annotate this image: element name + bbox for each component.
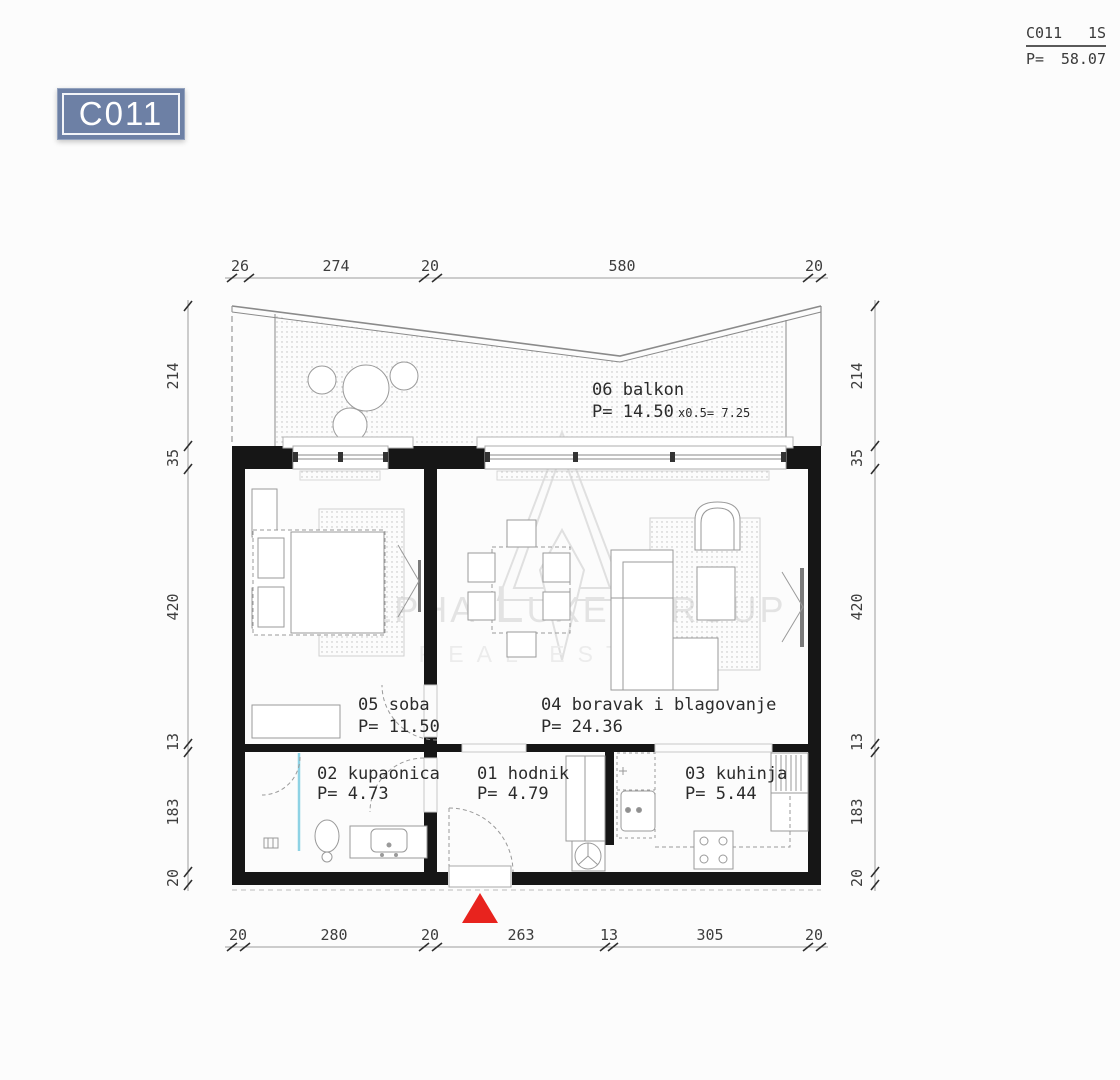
room-area-boravak: P= 24.36 [541,717,623,737]
faucet-dot [381,854,384,857]
sink-basin [371,829,407,852]
coffee-table [697,567,735,620]
room-label-kuhinja: 03 kuhinja [685,764,787,784]
dim-left-1: 35 [164,449,182,467]
room-area-kupaonica: P= 4.73 [317,784,389,804]
radiator [300,471,380,480]
dim-bottom-6: 20 [805,926,823,944]
room-label-kupaonica: 02 kupaonica [317,764,440,784]
dim-right-2: 420 [848,593,866,620]
windows [283,437,793,480]
tv-icon [418,560,421,612]
bedroom-window [293,446,388,469]
dim-top-4: 20 [805,257,823,275]
plant-icon [390,362,418,390]
dining-chair [543,553,570,582]
dining-chair [468,592,495,620]
wall-bottom [512,872,821,885]
dim-top-1: 274 [322,257,349,275]
entry-door-leaf [449,866,511,887]
wall-right [808,446,821,885]
wall-interior [526,744,655,752]
wall-interior [245,744,462,752]
room-area-hodnik: P= 4.79 [477,784,549,804]
pillow [258,587,284,627]
sofa-chaise [673,638,718,690]
dresser [252,705,340,738]
shower-drain [264,838,278,848]
room-label-boravak: 04 boravak i blagovanje [541,695,776,715]
wall-partition-bedroom [424,469,437,685]
room-area-balkon: P= 14.50 [592,402,674,422]
dim-top-2: 20 [421,257,439,275]
dim-top-0: 26 [231,257,249,275]
stove [694,831,733,869]
wall-bathroom [424,752,437,758]
room-area-soba: P= 11.50 [358,717,440,737]
entry-door-swing [449,808,513,872]
dim-right-5: 20 [848,869,866,887]
wall-bottom [232,872,448,885]
toilet-base [322,852,332,862]
plant-icon [308,366,336,394]
dim-left-0: 214 [164,362,182,389]
dim-left-4: 183 [164,798,182,825]
bed-mattress [291,532,384,633]
wall-segment [388,446,485,469]
dim-right-1: 35 [848,449,866,467]
dim-bottom-3: 263 [507,926,534,944]
wall-kitchen [605,752,614,845]
floor-plan: Alpha Luxe Group REAL ESTATE [0,0,1120,1080]
room-label-soba: 05 soba [358,695,430,715]
dim-bottom-0: 20 [229,926,247,944]
living-window [485,446,786,469]
sink-knob [637,808,642,813]
wall-partition-bedroom [424,737,437,744]
faucet-dot [387,843,391,847]
dining-chair [507,632,536,657]
dim-top-3: 580 [608,257,635,275]
toilet [315,820,339,852]
entrance-marker-icon [462,893,498,923]
shower-door-swing [262,757,300,795]
sofa [611,550,673,690]
hallway-fixtures [566,756,605,871]
radiator [497,471,769,480]
room-area-kuhinja: P= 5.44 [685,784,757,804]
dim-bottom-2: 20 [421,926,439,944]
dim-left-3: 13 [164,733,182,751]
hall-living-opening [462,744,526,752]
dining-chair [543,592,570,620]
dim-right-0: 214 [848,362,866,389]
dim-bottom-5: 305 [696,926,723,944]
dim-right-3: 13 [848,733,866,751]
armchair [695,502,740,550]
pillow [258,538,284,578]
kitchen-opening [655,744,772,752]
room-area-note-balkon: x0.5= 7.25 [678,406,750,420]
faucet-dot [395,854,398,857]
sink-knob [626,808,631,813]
wall-interior [772,744,808,752]
wall-left [232,446,245,885]
dining-chair [468,553,495,582]
plant-icon [343,365,389,411]
dim-right-4: 183 [848,798,866,825]
room-label-balkon: 06 balkon [592,380,684,400]
dim-bottom-1: 280 [320,926,347,944]
tv-icon [800,568,804,647]
balcony [232,306,821,446]
dim-left-2: 420 [164,593,182,620]
dining-chair [507,520,536,547]
room-label-hodnik: 01 hodnik [477,764,569,784]
dim-left-5: 20 [164,869,182,887]
dim-bottom-4: 13 [600,926,618,944]
